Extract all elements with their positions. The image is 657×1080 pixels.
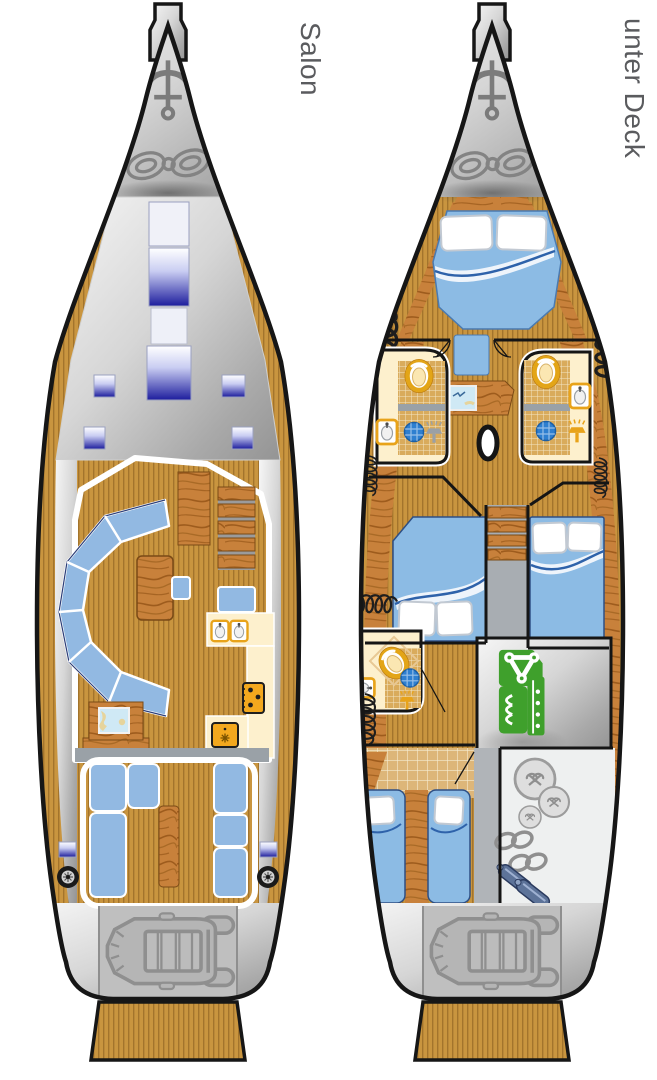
deck-plan-salon — [33, 0, 303, 1060]
engine-icon — [499, 650, 545, 736]
stern-storage — [494, 748, 615, 911]
yacht-floorplan: Salon unter Deck — [0, 0, 657, 1080]
skylight-hatch — [84, 427, 105, 449]
sink-icon — [212, 621, 229, 641]
swim-platform — [91, 1002, 245, 1060]
skylight-hatch — [222, 375, 245, 397]
pillow — [440, 215, 492, 251]
nav-seat — [218, 587, 255, 612]
cockpit-table — [159, 806, 179, 887]
wash-basin-icon — [570, 384, 590, 408]
floorplan-canvas — [0, 0, 657, 1080]
wash-basin-icon — [377, 420, 397, 444]
deck-plan-lower — [343, 0, 627, 1060]
skylight-hatch — [149, 248, 189, 306]
skylight-hatch — [232, 427, 253, 449]
toilet-icon — [532, 356, 560, 389]
fender-ball-icon — [519, 806, 541, 828]
skylight-hatch — [94, 375, 115, 397]
skylight-hatch — [147, 346, 191, 400]
salon-cutaway — [59, 458, 274, 762]
dinghy-garage — [357, 903, 627, 1002]
seat — [454, 335, 489, 375]
companionway-stairs — [486, 505, 528, 645]
mast-icon — [479, 427, 497, 459]
sideboard — [178, 472, 210, 545]
skylight-hatch — [59, 842, 76, 857]
pillow — [434, 796, 463, 824]
dinghy-icon — [107, 913, 233, 989]
salon-table — [137, 556, 173, 620]
winch-icon — [57, 866, 79, 888]
sink-icon — [231, 621, 248, 641]
dinghy-garage — [99, 906, 237, 1002]
stool — [172, 577, 190, 599]
fridge-icon — [212, 723, 238, 747]
deck-label-lower-deck: unter Deck — [617, 18, 651, 158]
swim-platform — [415, 1002, 569, 1060]
map-icon — [449, 386, 476, 410]
shower-drain-icon — [405, 423, 424, 442]
shower-drain-icon — [537, 422, 556, 441]
cockpit — [83, 760, 255, 906]
head-starboard — [522, 352, 590, 462]
winch-icon — [257, 866, 279, 888]
pillow — [436, 601, 472, 635]
pillow — [496, 215, 546, 251]
toilet-icon — [405, 360, 433, 393]
shower-drain-icon — [401, 669, 419, 687]
pillow — [532, 522, 566, 553]
aft-corridor — [474, 748, 500, 905]
deck-label-salon: Salon — [293, 22, 327, 96]
companionway-steps — [218, 487, 255, 570]
engine-room — [477, 638, 611, 758]
stove-icon — [243, 683, 264, 713]
head-port — [377, 350, 447, 463]
chart-table — [83, 702, 149, 754]
pillow — [568, 522, 602, 551]
skylight-hatch — [260, 842, 277, 857]
dinghy-icon — [431, 913, 557, 989]
fender-ball-icon — [539, 787, 569, 817]
